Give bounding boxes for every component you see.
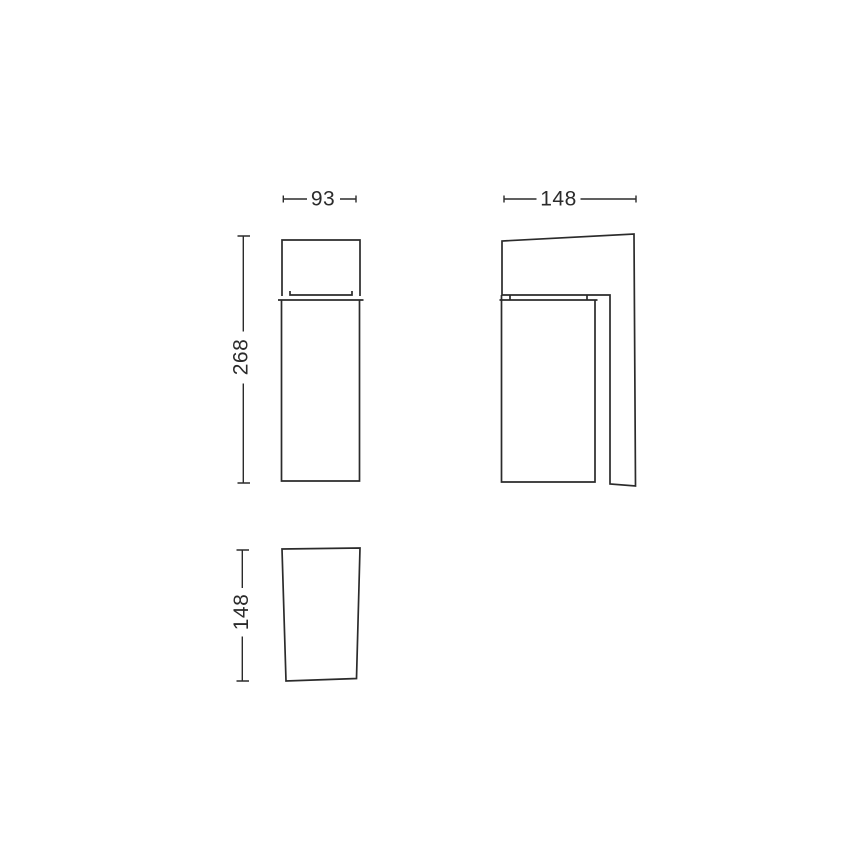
front-view — [278, 240, 364, 481]
side-body-outline — [502, 295, 596, 482]
front-width-dimension: 93 — [283, 188, 356, 211]
front-width-label: 93 — [311, 188, 335, 211]
bottom-view — [282, 548, 360, 681]
side-view — [500, 234, 636, 486]
front-head-outline — [282, 240, 360, 296]
bottom-depth-label: 148 — [230, 594, 253, 631]
bottom-view-outline — [282, 548, 360, 681]
bottom-depth-dimension: 148 — [230, 550, 253, 681]
front-body-outline — [282, 300, 360, 481]
side-width-dimension: 148 — [504, 188, 636, 211]
side-cover-and-backplate-outline — [502, 234, 636, 486]
dimension-drawing: 93 148 268 148 — [0, 0, 868, 868]
front-height-label: 268 — [230, 339, 253, 376]
side-width-label: 148 — [540, 188, 577, 211]
front-head-seam — [290, 291, 352, 295]
dimension-drawing-canvas: 93 148 268 148 — [0, 0, 868, 868]
front-height-dimension: 268 — [230, 236, 253, 483]
